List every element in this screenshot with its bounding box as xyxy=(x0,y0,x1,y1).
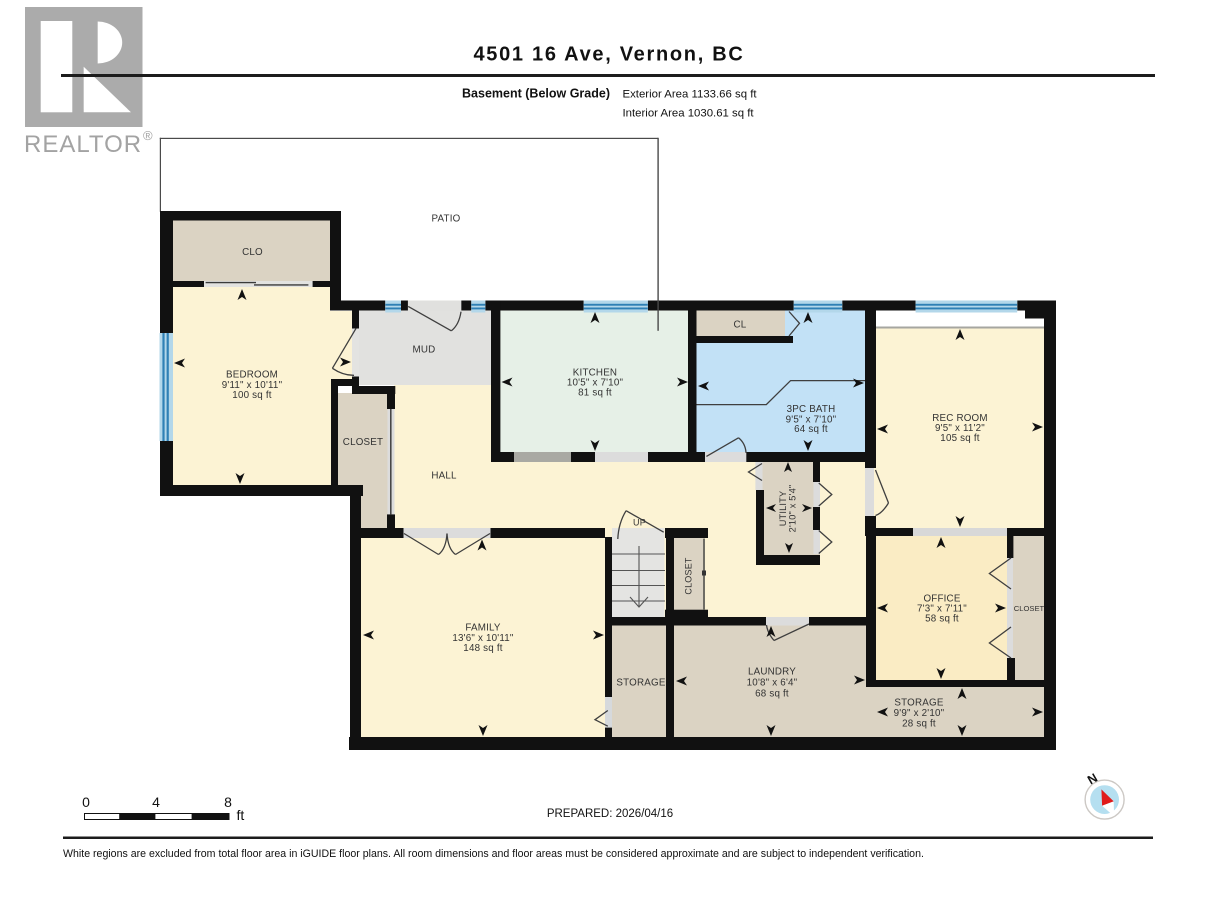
svg-text:81 sq ft: 81 sq ft xyxy=(578,388,612,399)
svg-text:0: 0 xyxy=(82,794,90,810)
svg-text:58 sq ft: 58 sq ft xyxy=(925,614,959,625)
svg-text:CLO: CLO xyxy=(242,247,263,258)
svg-text:10'8" x 6'4": 10'8" x 6'4" xyxy=(747,678,798,689)
svg-text:105 sq ft: 105 sq ft xyxy=(940,433,979,444)
svg-text:BEDROOM: BEDROOM xyxy=(226,370,278,381)
svg-text:HALL: HALL xyxy=(431,471,457,482)
svg-text:®: ® xyxy=(143,128,153,143)
svg-text:28 sq ft: 28 sq ft xyxy=(902,719,936,730)
svg-text:PREPARED: 2026/04/16: PREPARED: 2026/04/16 xyxy=(547,808,673,820)
svg-text:CLOSET: CLOSET xyxy=(1014,604,1045,613)
svg-text:Exterior Area 1133.66 sq ft: Exterior Area 1133.66 sq ft xyxy=(623,89,758,101)
svg-text:CLOSET: CLOSET xyxy=(684,557,694,595)
svg-text:MUD: MUD xyxy=(413,345,436,356)
svg-text:64 sq ft: 64 sq ft xyxy=(794,424,828,435)
svg-text:100 sq ft: 100 sq ft xyxy=(232,390,271,401)
svg-text:UP: UP xyxy=(633,518,646,528)
svg-text:68 sq ft: 68 sq ft xyxy=(755,688,789,699)
svg-text:FAMILY: FAMILY xyxy=(465,623,501,634)
svg-text:2'10" x 5'4": 2'10" x 5'4" xyxy=(788,485,798,533)
svg-text:4501 16 Ave, Vernon, BC: 4501 16 Ave, Vernon, BC xyxy=(473,44,744,66)
svg-text:White regions are excluded fro: White regions are excluded from total fl… xyxy=(63,848,924,860)
svg-text:UTILITY: UTILITY xyxy=(778,491,788,527)
svg-text:LAUNDRY: LAUNDRY xyxy=(748,667,796,678)
svg-text:148 sq ft: 148 sq ft xyxy=(463,643,502,654)
svg-text:STORAGE: STORAGE xyxy=(894,698,943,709)
svg-text:STORAGE: STORAGE xyxy=(616,678,665,689)
svg-text:ft: ft xyxy=(237,807,245,823)
svg-text:PATIO: PATIO xyxy=(432,214,461,225)
svg-text:Interior Area 1030.61 sq ft: Interior Area 1030.61 sq ft xyxy=(623,108,755,120)
svg-text:Basement (Below Grade): Basement (Below Grade) xyxy=(462,87,610,101)
svg-text:CL: CL xyxy=(734,320,747,331)
svg-text:REALTOR: REALTOR xyxy=(24,131,142,158)
svg-text:9'9" x 2'10": 9'9" x 2'10" xyxy=(894,708,945,719)
svg-text:8: 8 xyxy=(224,794,232,810)
svg-text:CLOSET: CLOSET xyxy=(343,437,383,448)
svg-text:4: 4 xyxy=(152,794,160,810)
